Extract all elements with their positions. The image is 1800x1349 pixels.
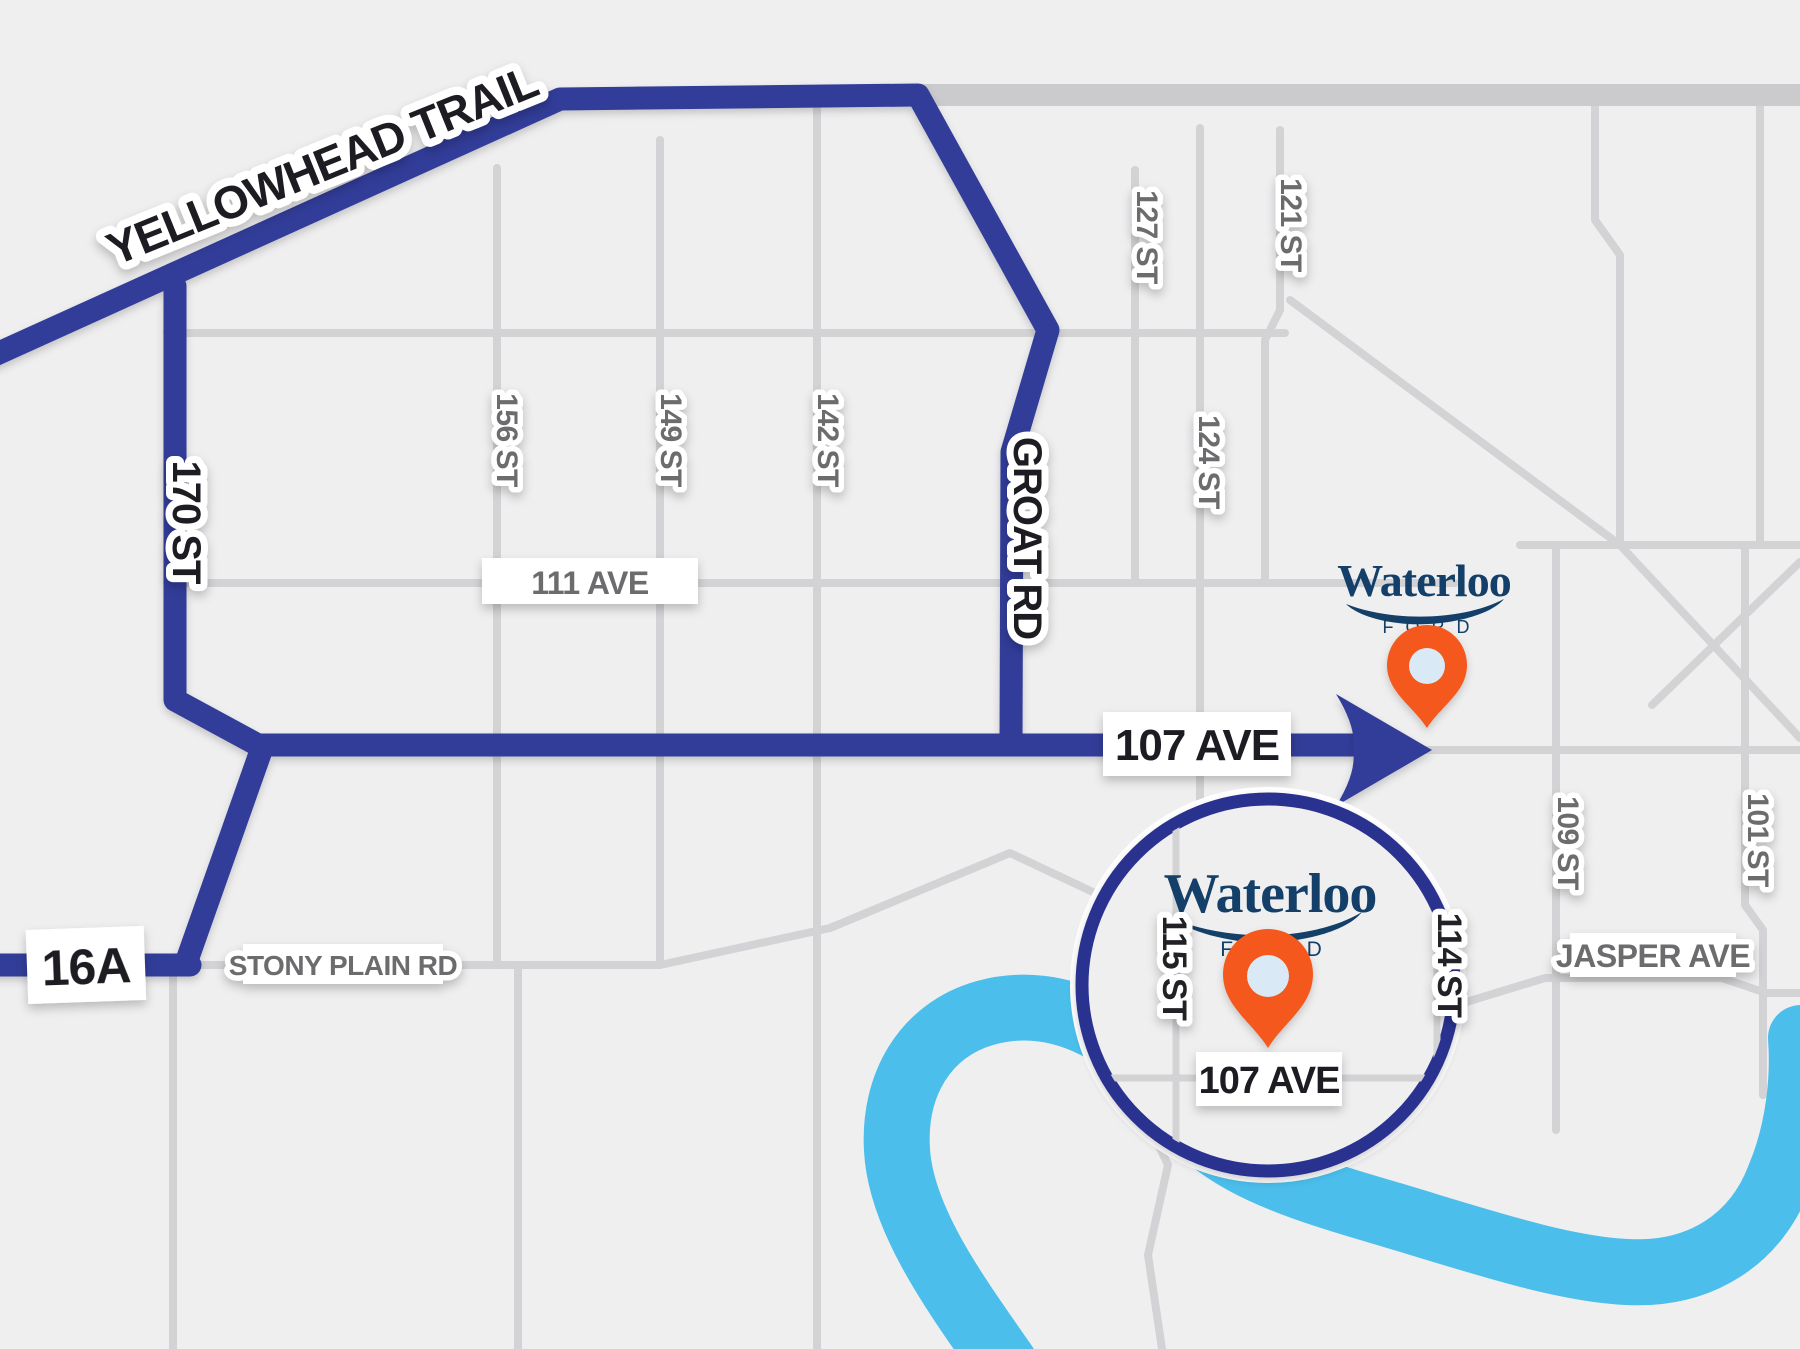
svg-text:16A: 16A (41, 937, 132, 996)
svg-text:STONY PLAIN RD: STONY PLAIN RD (229, 950, 458, 981)
label-156-st: 156 ST (490, 393, 523, 487)
label-jasper-ave: JASPER AVE (1556, 933, 1750, 977)
label-111-ave: 111 AVE (482, 558, 698, 604)
brand-name-inset: Waterloo (1164, 863, 1377, 925)
label-149-st: 149 ST (654, 393, 687, 487)
brand-name-main: Waterloo (1337, 555, 1510, 606)
label-groat-rd: GROAT RD (1005, 437, 1049, 639)
label-121-st: 121 ST (1274, 178, 1307, 272)
label-109-st: 109 ST (1551, 796, 1584, 890)
svg-text:JASPER AVE: JASPER AVE (1556, 938, 1750, 974)
map-canvas: Waterloo FORD 156 ST 149 ST 142 ST 127 S… (0, 0, 1800, 1349)
label-101-st: 101 ST (1741, 793, 1774, 887)
label-127-st: 127 ST (1130, 190, 1163, 284)
pin-hole-main (1409, 648, 1445, 684)
label-stony-plain-rd: STONY PLAIN RD (229, 944, 458, 984)
svg-text:111 AVE: 111 AVE (531, 565, 649, 601)
inset-detail-circle: Waterloo FORD 115 ST 114 ST 107 AVE (1075, 792, 1468, 1178)
label-115-st-inset: 115 ST (1155, 916, 1193, 1021)
label-114-st-inset: 114 ST (1430, 913, 1468, 1018)
label-142-st: 142 ST (811, 393, 844, 487)
label-16a: 16A (26, 926, 147, 1004)
label-124-st: 124 ST (1192, 415, 1225, 509)
label-107-ave-inset: 107 AVE (1196, 1052, 1342, 1106)
svg-text:107 AVE: 107 AVE (1115, 721, 1279, 770)
svg-text:107 AVE: 107 AVE (1199, 1060, 1340, 1102)
edmonton-directions-map: Waterloo FORD 156 ST 149 ST 142 ST 127 S… (0, 0, 1800, 1349)
label-107-ave-main: 107 AVE (1103, 712, 1291, 776)
label-170-st: 170 ST (164, 461, 208, 585)
pin-hole-inset (1247, 955, 1289, 997)
